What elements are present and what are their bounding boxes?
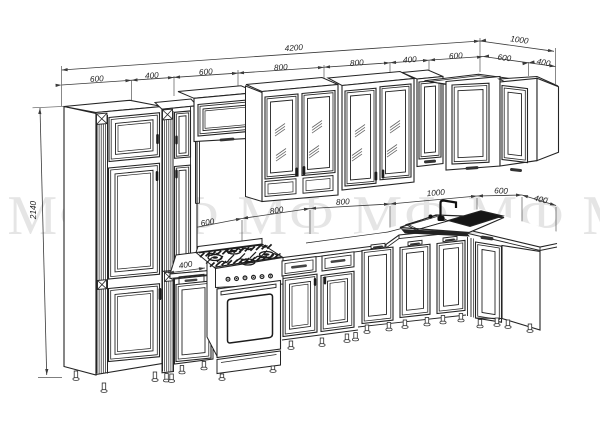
svg-text:1000: 1000 bbox=[426, 188, 445, 199]
svg-text:600: 600 bbox=[199, 67, 214, 77]
svg-text:800: 800 bbox=[336, 197, 351, 207]
svg-text:600: 600 bbox=[449, 51, 464, 61]
svg-text:800: 800 bbox=[274, 63, 289, 73]
svg-text:МФ: МФ bbox=[582, 185, 600, 247]
svg-text:2140: 2140 bbox=[29, 200, 38, 220]
svg-text:400: 400 bbox=[403, 55, 418, 65]
svg-text:600: 600 bbox=[497, 53, 512, 64]
svg-text:600: 600 bbox=[90, 74, 105, 84]
svg-text:4200: 4200 bbox=[284, 43, 303, 53]
svg-text:800: 800 bbox=[350, 58, 365, 68]
svg-text:400: 400 bbox=[145, 71, 160, 81]
svg-text:600: 600 bbox=[494, 186, 508, 195]
